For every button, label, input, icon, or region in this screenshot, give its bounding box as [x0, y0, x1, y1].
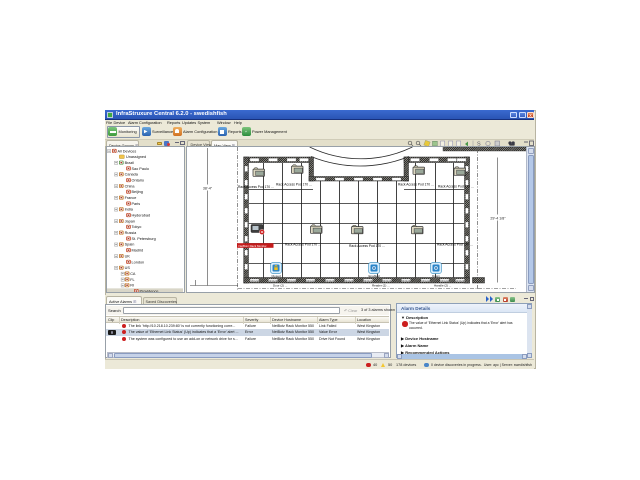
svg-text:China: China: [125, 184, 136, 188]
svg-text:Providence: Providence: [140, 289, 159, 292]
svg-text:Sao Paulo: Sao Paulo: [132, 167, 150, 171]
svg-text:Rack Access Pod 170 ...: Rack Access Pod 170 ...: [398, 182, 434, 186]
svg-text:CA: CA: [130, 272, 136, 276]
svg-text:Rack Access Pod 170 ...: Rack Access Pod 170 ...: [437, 242, 473, 246]
svg-text:RI: RI: [130, 284, 134, 288]
svg-text:Rack Access Pod 170 ...: Rack Access Pod 170 ...: [285, 242, 321, 246]
svg-text:All Devices: All Devices: [118, 149, 137, 153]
svg-text:NETB-RA: NETB-RA: [402, 279, 411, 282]
svg-text:Madrid: Madrid: [132, 249, 144, 253]
svg-text:Reader (2) ...: Reader (2) ...: [372, 283, 390, 287]
svg-text:Rack Access Pod 170 ...: Rack Access Pod 170 ...: [438, 185, 474, 189]
svg-text:NETB-RA: NETB-RA: [251, 279, 260, 282]
svg-text:Russia: Russia: [125, 231, 137, 235]
svg-text:NETB-RA: NETB-RA: [288, 279, 297, 282]
svg-text:London: London: [132, 260, 145, 264]
svg-text:Beijing: Beijing: [132, 190, 143, 194]
svg-text:Door (2) ...: Door (2) ...: [273, 283, 288, 287]
svg-text:NETB-RA: NETB-RA: [345, 279, 354, 282]
svg-text:NETB-RA: NETB-RA: [269, 279, 278, 282]
svg-text:NETB-RA: NETB-RA: [307, 279, 316, 282]
svg-text:Rack Access Pod 170 ...: Rack Access Pod 170 ...: [349, 244, 385, 248]
svg-text:NETB-RA: NETB-RA: [326, 279, 335, 282]
svg-text:Paris: Paris: [132, 202, 141, 206]
svg-text:Canada: Canada: [125, 173, 139, 177]
svg-text:Closed: Closed: [271, 274, 281, 278]
svg-text:Rack Access Pod 170 ...: Rack Access Pod 170 ...: [238, 185, 274, 189]
svg-text:Hyderabad: Hyderabad: [132, 214, 151, 218]
svg-text:Ontario: Ontario: [132, 179, 144, 183]
svg-text:Enabled: Enabled: [368, 274, 379, 278]
svg-text:Handle (2) ...: Handle (2) ...: [434, 283, 452, 287]
svg-text:US: US: [125, 266, 131, 270]
svg-text:Tokyo: Tokyo: [132, 225, 142, 229]
svg-text:India: India: [125, 208, 134, 212]
svg-text:Japan: Japan: [125, 219, 135, 223]
svg-text:NETB-RA: NETB-RA: [364, 279, 373, 282]
svg-text:UK: UK: [125, 254, 131, 258]
svg-text:Down: Down: [432, 274, 440, 278]
svg-text:FL: FL: [130, 278, 134, 282]
svg-text:Brazil: Brazil: [125, 161, 135, 165]
svg-text:NETB-RA: NETB-RA: [456, 279, 465, 282]
svg-text:France: France: [125, 196, 137, 200]
svg-text:29'-4 1/8": 29'-4 1/8": [490, 216, 506, 220]
svg-text:St. Petersburg: St. Petersburg: [132, 237, 156, 241]
svg-text:Unassigned: Unassigned: [126, 155, 146, 159]
svg-text:NETB-RA: NETB-RA: [383, 279, 392, 282]
svg-text:38'-4": 38'-4": [203, 186, 213, 190]
svg-text:NETB-RA: NETB-RA: [441, 279, 450, 282]
svg-text:NetBotz Rack Monitor: NetBotz Rack Monitor: [239, 244, 267, 248]
svg-text:Spain: Spain: [125, 243, 135, 247]
svg-text:NETB-RA: NETB-RA: [422, 279, 431, 282]
svg-text:Rack Access Pod 170 ...: Rack Access Pod 170 ...: [276, 183, 312, 187]
